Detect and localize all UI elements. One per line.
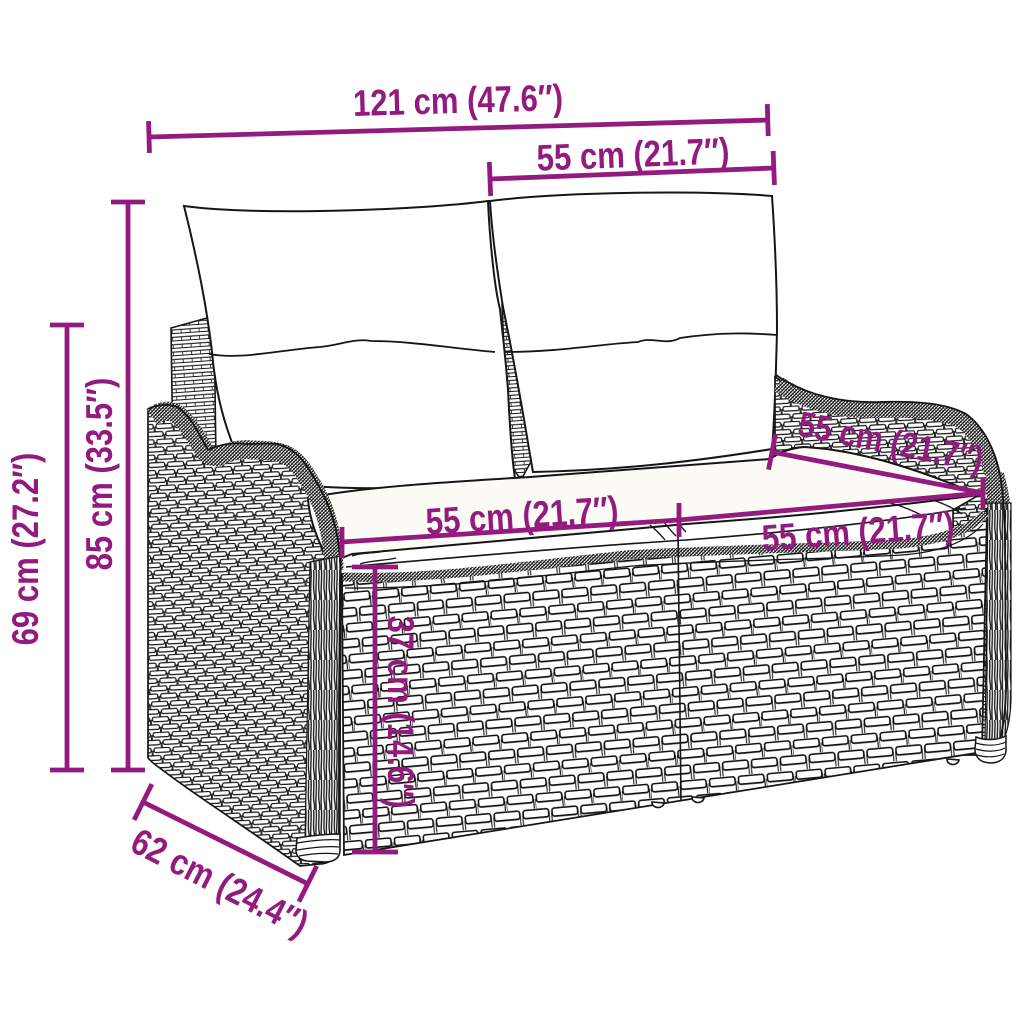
svg-text:85 cm (33.5″): 85 cm (33.5″) [80, 378, 121, 571]
svg-text:121 cm (47.6″): 121 cm (47.6″) [352, 78, 563, 125]
svg-text:37 cm (14.6″): 37 cm (14.6″) [379, 616, 420, 809]
svg-text:55 cm (21.7″): 55 cm (21.7″) [536, 131, 730, 180]
svg-text:69 cm (27.2″): 69 cm (27.2″) [6, 453, 47, 646]
